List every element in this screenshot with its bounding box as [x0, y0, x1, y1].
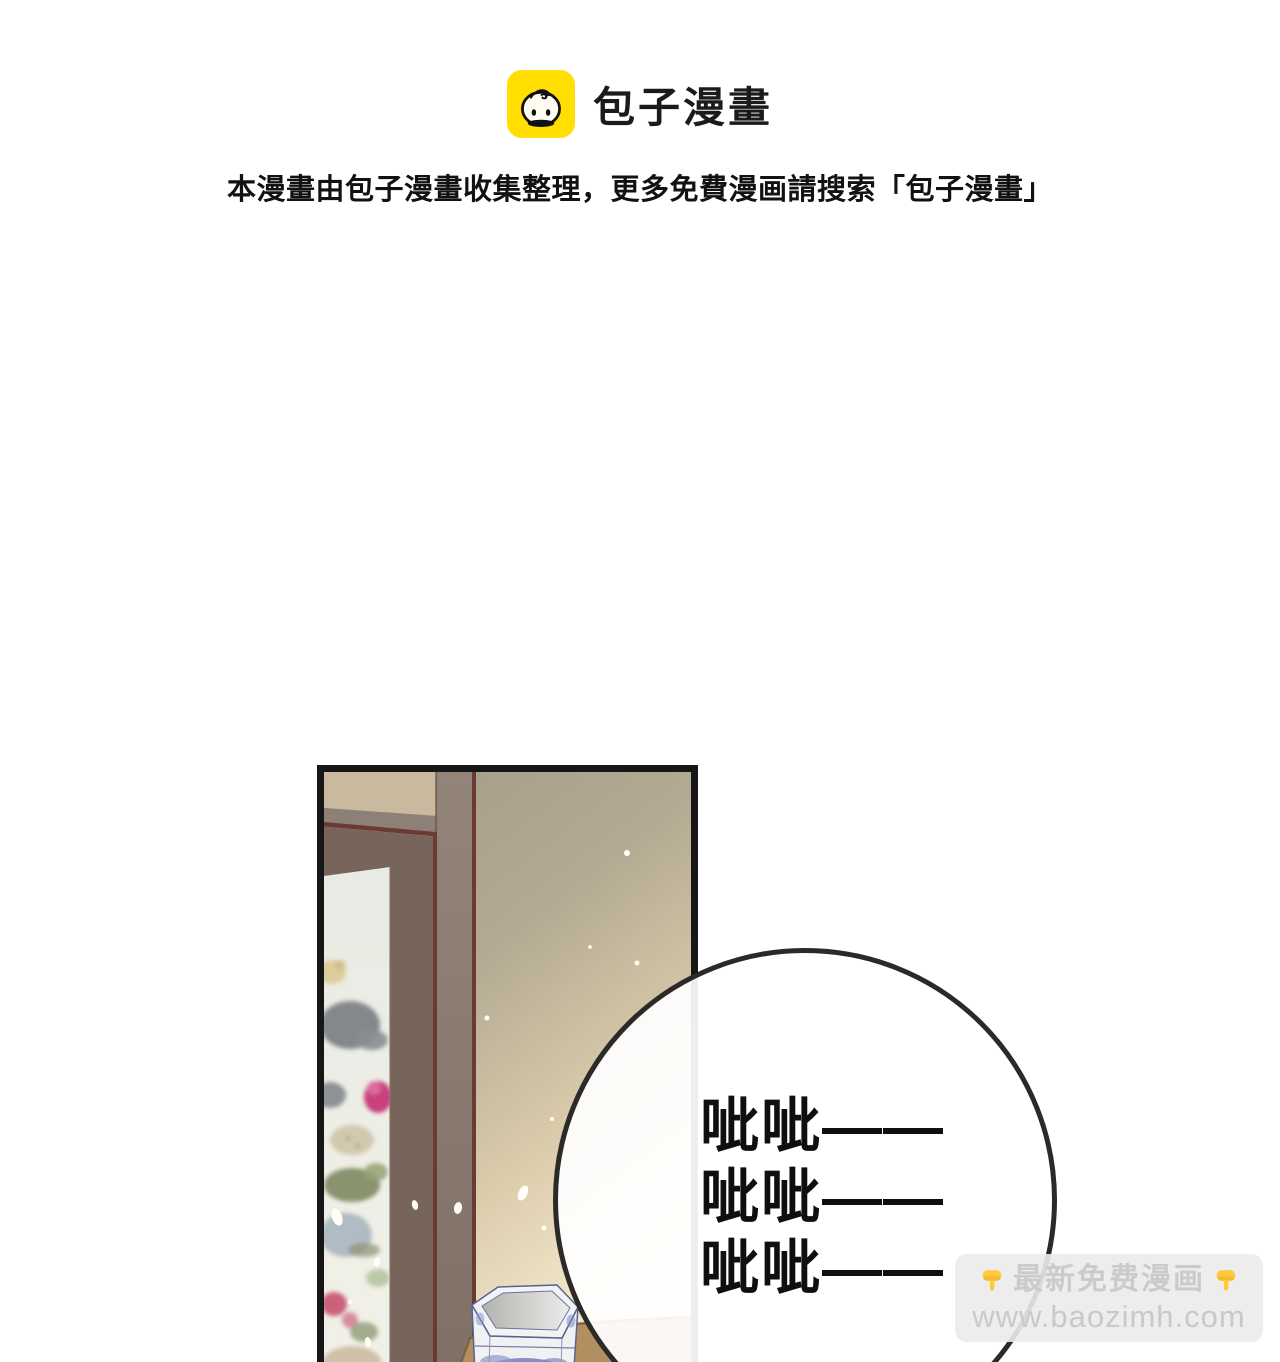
- baozi-bun-icon: [507, 70, 575, 138]
- watermark-url: www.baozimh.com: [972, 1299, 1245, 1335]
- notice-text: 本漫畫由包子漫畫收集整理，更多免費漫画請搜索「包子漫畫」: [0, 171, 1280, 209]
- comic-page: 包子漫畫 本漫畫由包子漫畫收集整理，更多免費漫画請搜索「包子漫畫」: [0, 0, 1280, 1362]
- watermark-line1: 最新免费漫画: [978, 1261, 1240, 1299]
- watermark-text: 最新免费漫画: [1013, 1261, 1205, 1299]
- watermark-badge: 最新免费漫画 www.baozimh.com: [955, 1254, 1263, 1342]
- sfx-line-1: 呲呲——: [700, 1091, 944, 1162]
- sfx-text: 呲呲—— 呲呲—— 呲呲——: [700, 1091, 944, 1304]
- brand-header: 包子漫畫: [0, 70, 1280, 138]
- wooden-pillar: [436, 772, 476, 1362]
- pointing-down-hand-icon: [1212, 1266, 1240, 1294]
- brand-title: 包子漫畫: [593, 74, 773, 135]
- porcelain-planter: [472, 1285, 578, 1362]
- sfx-line-3: 呲呲——: [700, 1233, 944, 1304]
- scroll-painting: [324, 867, 390, 1362]
- sfx-line-2: 呲呲——: [700, 1162, 944, 1233]
- pointing-down-hand-icon: [978, 1266, 1006, 1294]
